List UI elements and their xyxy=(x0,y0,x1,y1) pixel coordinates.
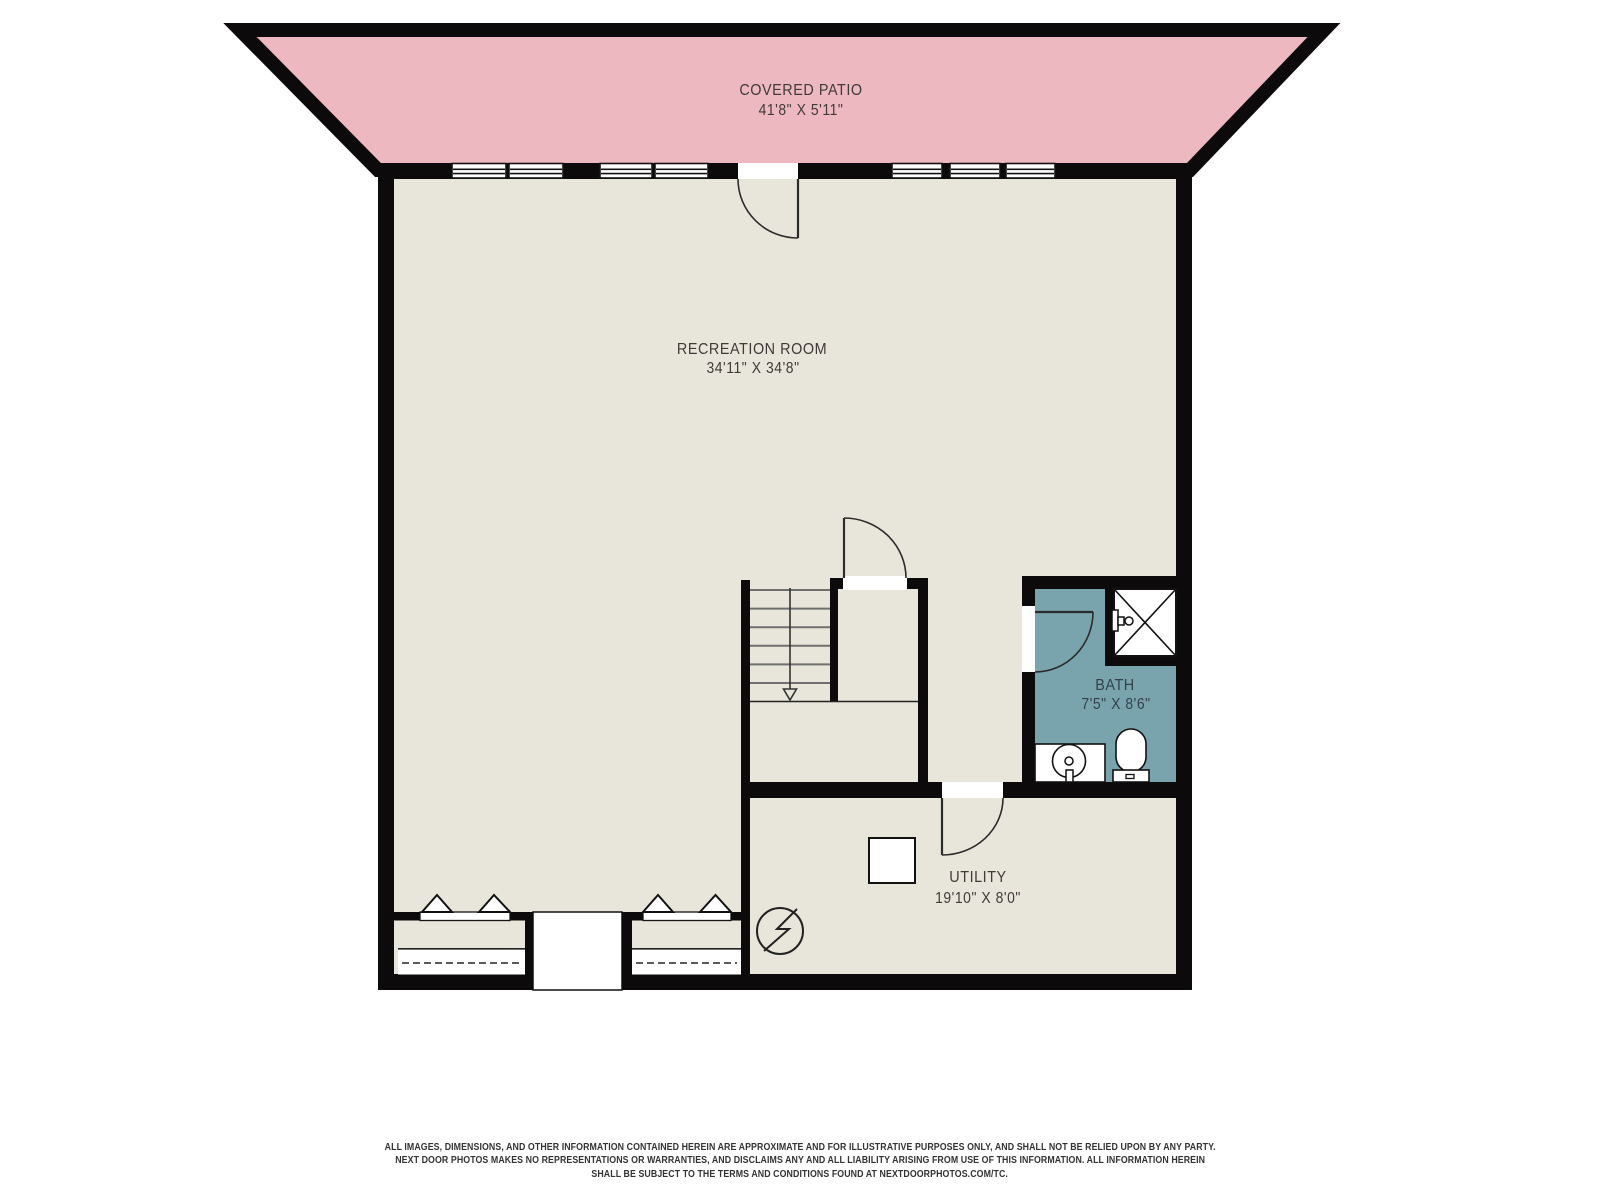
covered-patio-dims: 41'8" X 5'11" xyxy=(759,102,844,120)
bath-top-wall xyxy=(1022,576,1192,589)
bifold-track xyxy=(420,912,510,921)
bulkhead-well xyxy=(533,912,622,990)
window-group-right xyxy=(892,164,1055,179)
closet-shelf-icon xyxy=(398,948,525,975)
utility-dims: 19'10" X 8'0" xyxy=(935,890,1021,908)
shower-bottom-wall xyxy=(1105,656,1176,666)
window-icon xyxy=(1006,164,1055,179)
toilet-icon xyxy=(1113,729,1149,782)
floor-plan-drawing xyxy=(0,0,1600,1200)
disclaimer: ALL IMAGES, DIMENSIONS, AND OTHER INFORM… xyxy=(0,1141,1600,1181)
utility-label: UTILITY xyxy=(949,869,1006,887)
bulkhead-wall xyxy=(525,912,533,990)
door-opening xyxy=(843,576,907,590)
window-icon xyxy=(452,164,506,179)
bifold-track xyxy=(643,912,731,921)
closet-wall xyxy=(731,912,750,921)
disclaimer-line-2: NEXT DOOR PHOTOS MAKES NO REPRESENTATION… xyxy=(395,1154,1205,1167)
recreation-room-label: RECREATION ROOM xyxy=(677,341,827,359)
bulkhead-wall xyxy=(622,912,632,990)
floor-plan-page: COVERED PATIO 41'8" X 5'11" RECREATION R… xyxy=(0,0,1600,1200)
bath-label: BATH xyxy=(1095,677,1135,695)
disclaimer-line-1: ALL IMAGES, DIMENSIONS, AND OTHER INFORM… xyxy=(385,1141,1216,1154)
window-icon xyxy=(600,164,652,179)
window-icon xyxy=(655,164,708,179)
window-icon xyxy=(950,164,1000,179)
disclaimer-line-3: SHALL BE SUBJECT TO THE TERMS AND CONDIT… xyxy=(592,1168,1009,1181)
recreation-room-dims: 34'11" X 34'8" xyxy=(706,360,799,378)
closet-right-wall xyxy=(918,578,928,798)
covered-patio-label: COVERED PATIO xyxy=(739,82,862,100)
closet-shelf-icon xyxy=(632,948,741,975)
window-icon xyxy=(892,164,942,179)
covered-patio-area xyxy=(240,30,1324,170)
electrical-meter-icon xyxy=(757,908,803,954)
water-heater-icon xyxy=(869,838,915,883)
door-opening xyxy=(942,782,1003,798)
sink-icon xyxy=(1035,744,1105,782)
window-icon xyxy=(509,164,563,179)
bath-dims: 7'5" X 8'6" xyxy=(1081,696,1150,714)
closet-wall xyxy=(394,912,420,921)
shower-icon xyxy=(1112,589,1176,656)
door-opening xyxy=(738,163,798,179)
stair-right-wall xyxy=(830,578,838,702)
door-opening xyxy=(1022,606,1035,672)
